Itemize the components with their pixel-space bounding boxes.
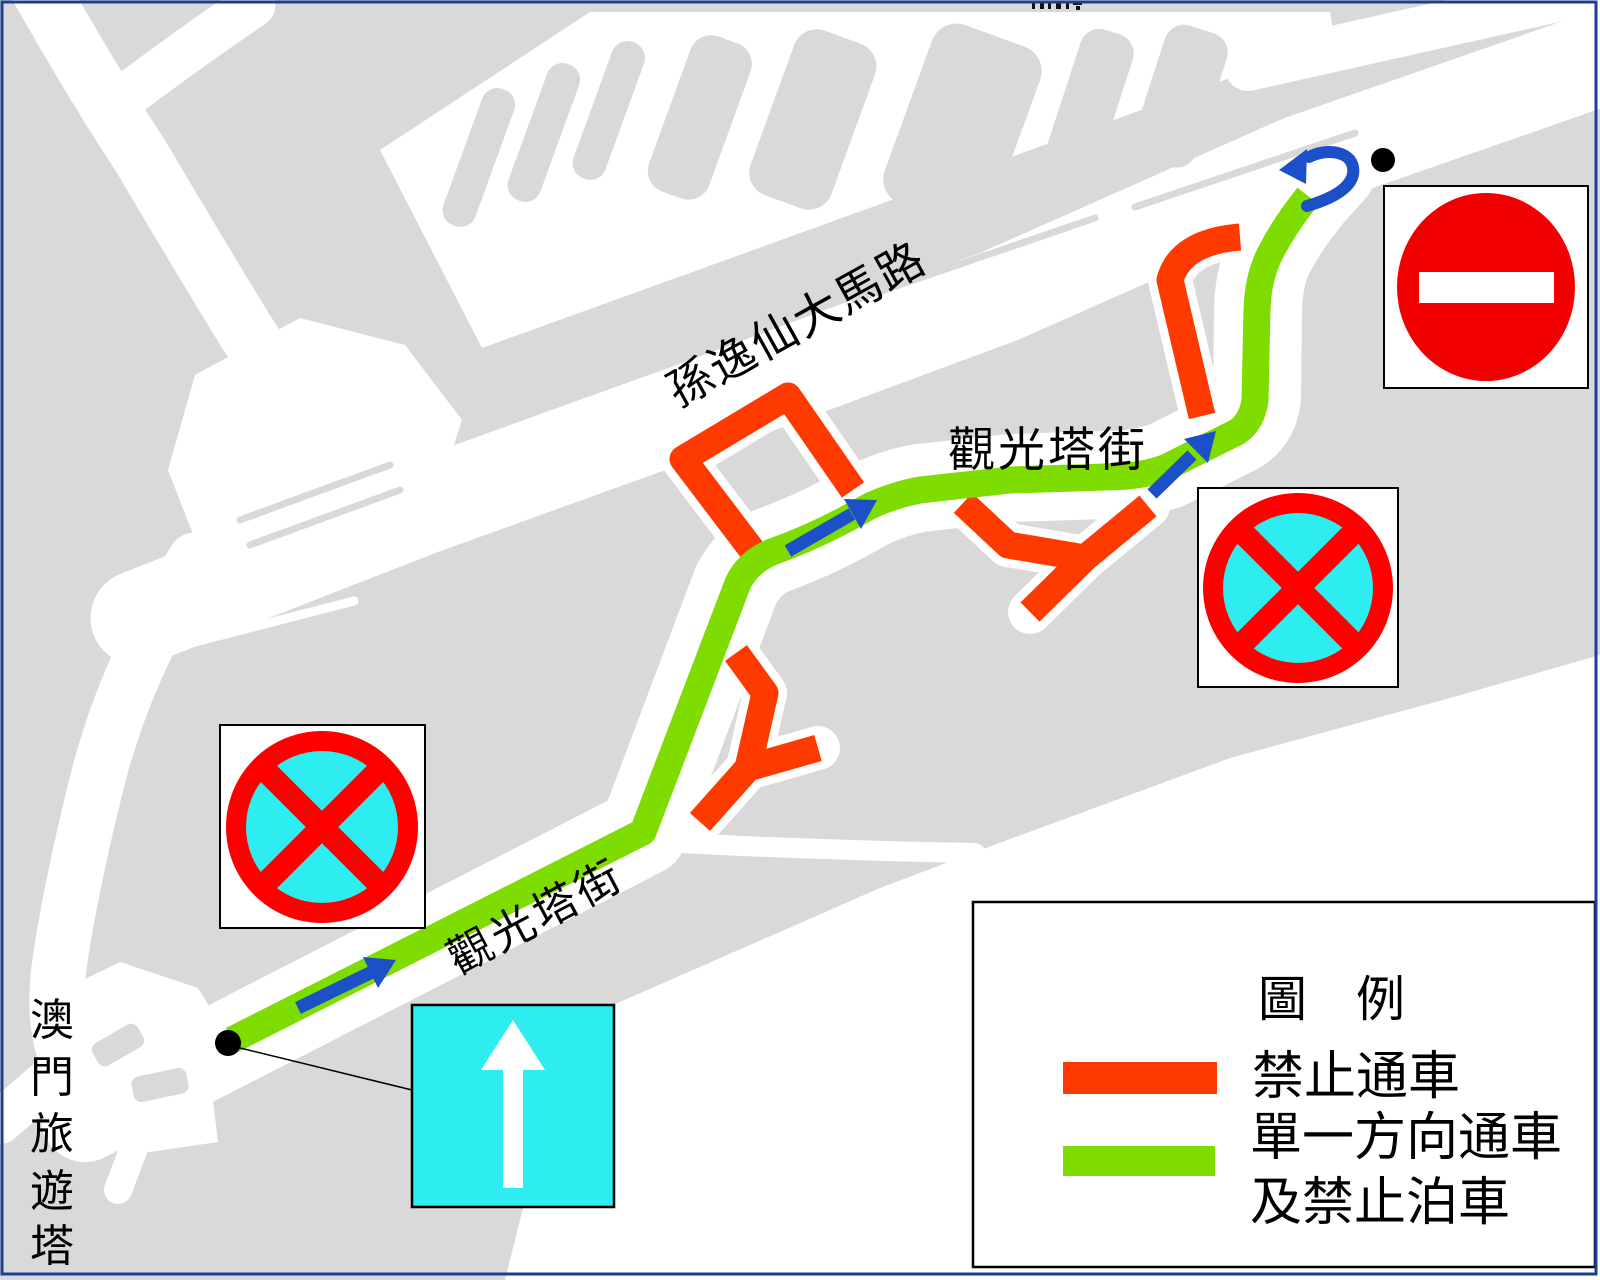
legend-label-one-way-2: 及禁止泊車	[1250, 1175, 1510, 1232]
one-way-arrow-shaft	[503, 1068, 523, 1188]
no-stopping-sign-right	[1198, 488, 1398, 687]
route-start-marker	[215, 1030, 241, 1056]
tower-char: 門	[30, 1053, 74, 1102]
legend-label-closed: 禁止通車	[1252, 1049, 1460, 1106]
legend-swatch-closed	[1063, 1062, 1217, 1094]
no-entry-sign	[1384, 186, 1588, 388]
no-entry-bar	[1419, 272, 1554, 303]
traffic-map-page: 孫逸仙大馬路 觀光塔街 觀光塔街 澳 門 旅 遊 塔 圖 例 禁止通車 單一方向…	[0, 0, 1600, 1280]
label-street-upper: 觀光塔街	[948, 425, 1148, 477]
legend: 圖 例 禁止通車 單一方向通車 及禁止泊車	[973, 902, 1595, 1267]
legend-label-one-way-1: 單一方向通車	[1250, 1110, 1562, 1167]
tower-char: 旅	[30, 1110, 74, 1159]
no-stopping-sign-left	[220, 725, 425, 928]
label-macau-tower: 澳 門 旅 遊 塔	[30, 996, 74, 1271]
one-way-sign	[412, 1005, 614, 1207]
tower-char: 澳	[30, 996, 74, 1045]
traffic-map: 孫逸仙大馬路 觀光塔街 觀光塔街 澳 門 旅 遊 塔 圖 例 禁止通車 單一方向…	[0, 0, 1600, 1280]
tower-char: 遊	[30, 1167, 74, 1216]
legend-title: 圖 例	[1258, 972, 1405, 1027]
route-end-marker	[1371, 148, 1395, 172]
road-shore-lane	[660, 842, 975, 853]
legend-swatch-one-way	[1063, 1146, 1215, 1176]
tower-char: 塔	[30, 1222, 74, 1271]
